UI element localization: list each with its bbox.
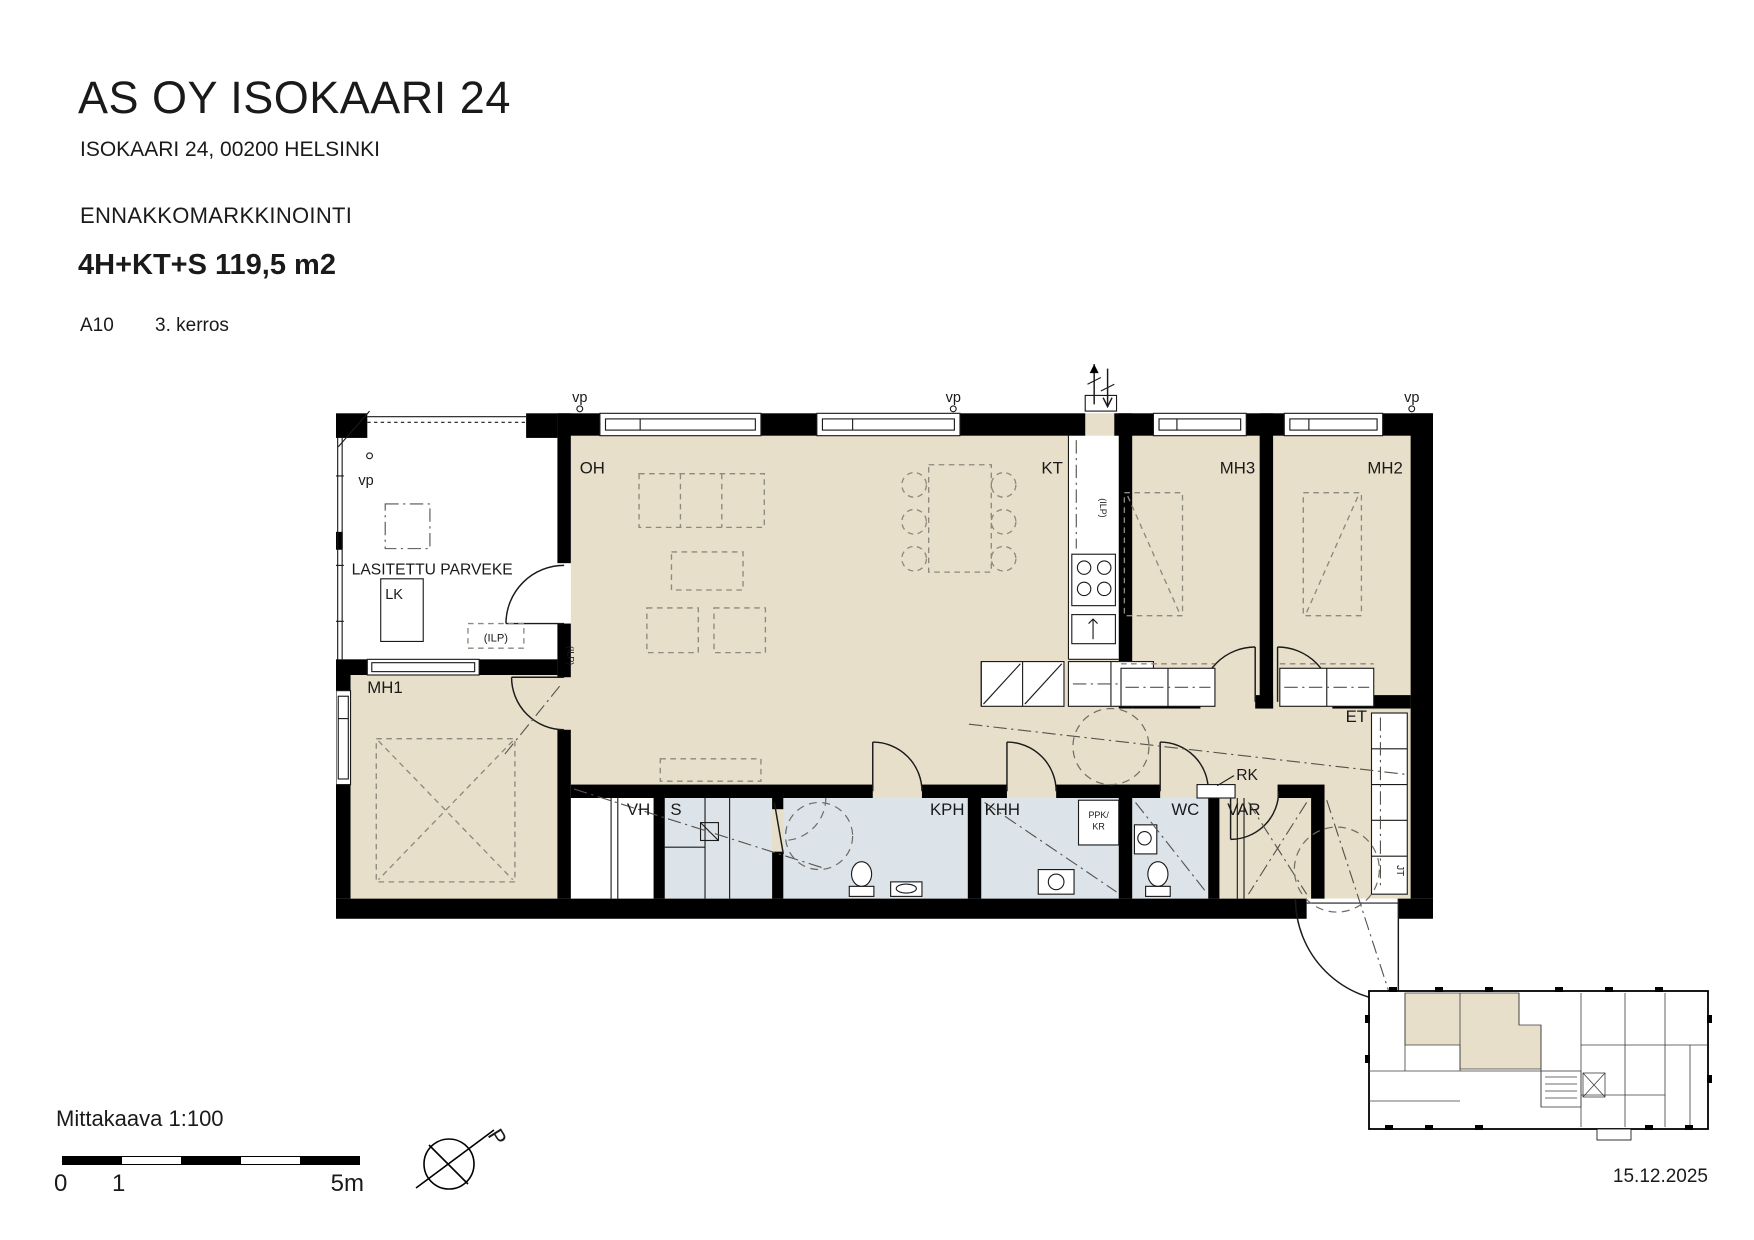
scale-tick-0: 0 xyxy=(54,1170,67,1198)
marketing-status: ENNAKKOMARKKINOINTI xyxy=(80,203,352,229)
toilet-kph xyxy=(852,862,872,887)
label-jt: JT xyxy=(1394,865,1405,876)
room-label-wc: WC xyxy=(1171,800,1199,819)
plan-date: 15.12.2025 xyxy=(1586,1166,1708,1188)
window xyxy=(367,659,479,675)
label-ilp: (ILP) xyxy=(484,632,508,644)
floor-number: 3. kerros xyxy=(155,315,229,337)
room-label-vh: VH xyxy=(627,800,650,819)
label-kr: KR xyxy=(1092,821,1105,831)
vp-marker-1: vp xyxy=(572,390,587,406)
room-label-var: VAR xyxy=(1227,800,1260,819)
label-lk: LK xyxy=(385,587,403,603)
room-label-balcony: LASITETTU PARVEKE xyxy=(352,561,513,578)
site-plan xyxy=(1365,985,1712,1142)
scale-label: Mittakaava 1:100 xyxy=(56,1106,224,1132)
window xyxy=(336,691,351,785)
label-rk: RK xyxy=(1236,767,1258,784)
window xyxy=(1153,413,1246,435)
scale-tick-1: 1 xyxy=(112,1170,125,1198)
balcony-floor xyxy=(336,413,571,675)
label-ilp-kt: (ILP) xyxy=(1098,498,1108,517)
address-line: ISOKAARI 24, 00200 HELSINKI xyxy=(80,138,380,162)
apartment-type: 4H+KT+S 119,5 m2 xyxy=(78,249,336,282)
room-label-mh3: MH3 xyxy=(1220,459,1255,478)
room-label-et: ET xyxy=(1346,707,1367,726)
scale-tick-5m: 5m xyxy=(316,1170,364,1198)
sink-khh xyxy=(1038,870,1074,895)
label-ilp-small: (ILP) xyxy=(565,646,575,665)
vp-marker-balcony: vp xyxy=(358,473,373,489)
window xyxy=(600,413,761,435)
room-label-s: S xyxy=(670,800,681,819)
room-label-kph: KPH xyxy=(930,800,964,819)
room-label-mh1: MH1 xyxy=(367,678,402,697)
apartment-id: A10 xyxy=(80,315,114,337)
room-label-oh: OH xyxy=(580,459,605,478)
vp-marker-3: vp xyxy=(1404,390,1419,406)
north-arrow: P xyxy=(412,1116,516,1202)
window xyxy=(1284,413,1382,435)
vp-marker-2: vp xyxy=(946,390,961,406)
ventilation-icon xyxy=(1085,364,1116,411)
label-ppk: PPK/ xyxy=(1088,810,1109,820)
room-label-mh2: MH2 xyxy=(1367,459,1402,478)
room-label-khh: KHH xyxy=(985,800,1020,819)
window xyxy=(817,413,960,435)
floor-plan-sheet: AS OY ISOKAARI 24 ISOKAARI 24, 00200 HEL… xyxy=(0,0,1754,1240)
stove-sink-unit xyxy=(1072,554,1116,605)
floor-plan: vp vp vp vp OH KT MH3 MH2 MH1 LASITETTU … xyxy=(336,357,1433,1031)
north-label: P xyxy=(483,1124,512,1150)
rk-cabinet xyxy=(1197,785,1235,798)
scale-bar xyxy=(62,1156,360,1165)
toilet-wc xyxy=(1148,862,1168,887)
room-label-kt: KT xyxy=(1041,459,1062,478)
page-title: AS OY ISOKAARI 24 xyxy=(78,72,511,124)
